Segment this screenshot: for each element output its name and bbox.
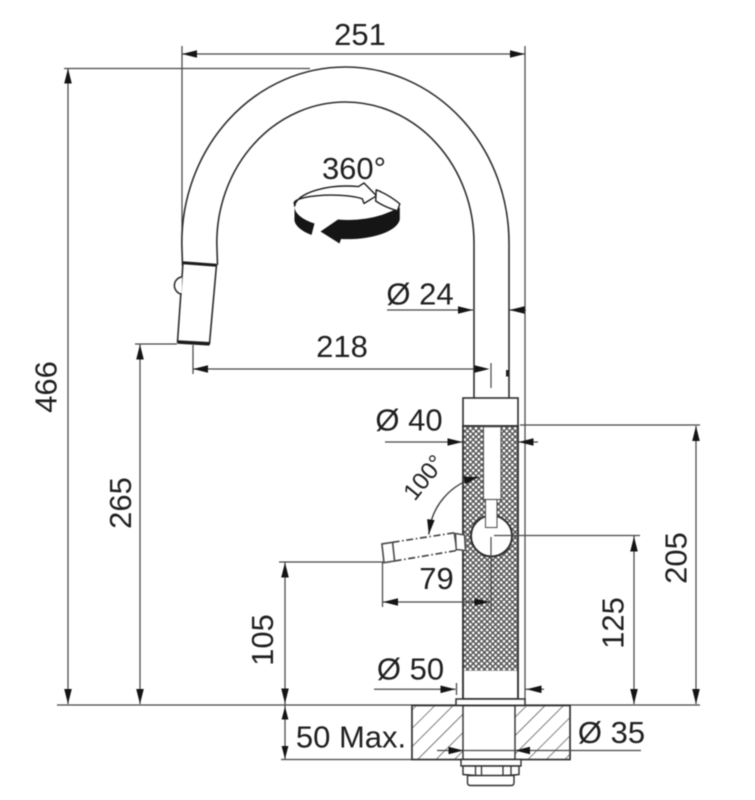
svg-text:251: 251 — [334, 17, 386, 52]
svg-text:Ø 35: Ø 35 — [578, 715, 645, 750]
svg-text:Ø 24: Ø 24 — [386, 277, 453, 312]
svg-text:218: 218 — [316, 329, 368, 364]
svg-text:Ø 40: Ø 40 — [375, 403, 442, 438]
svg-text:125: 125 — [596, 597, 631, 649]
svg-text:Ø 50: Ø 50 — [377, 652, 444, 687]
svg-text:105: 105 — [245, 614, 280, 666]
svg-text:205: 205 — [659, 532, 694, 584]
svg-text:79: 79 — [419, 561, 453, 596]
svg-text:466: 466 — [29, 361, 64, 413]
svg-text:360°: 360° — [322, 151, 386, 186]
svg-text:50 Max.: 50 Max. — [296, 720, 406, 755]
svg-text:265: 265 — [103, 477, 138, 529]
